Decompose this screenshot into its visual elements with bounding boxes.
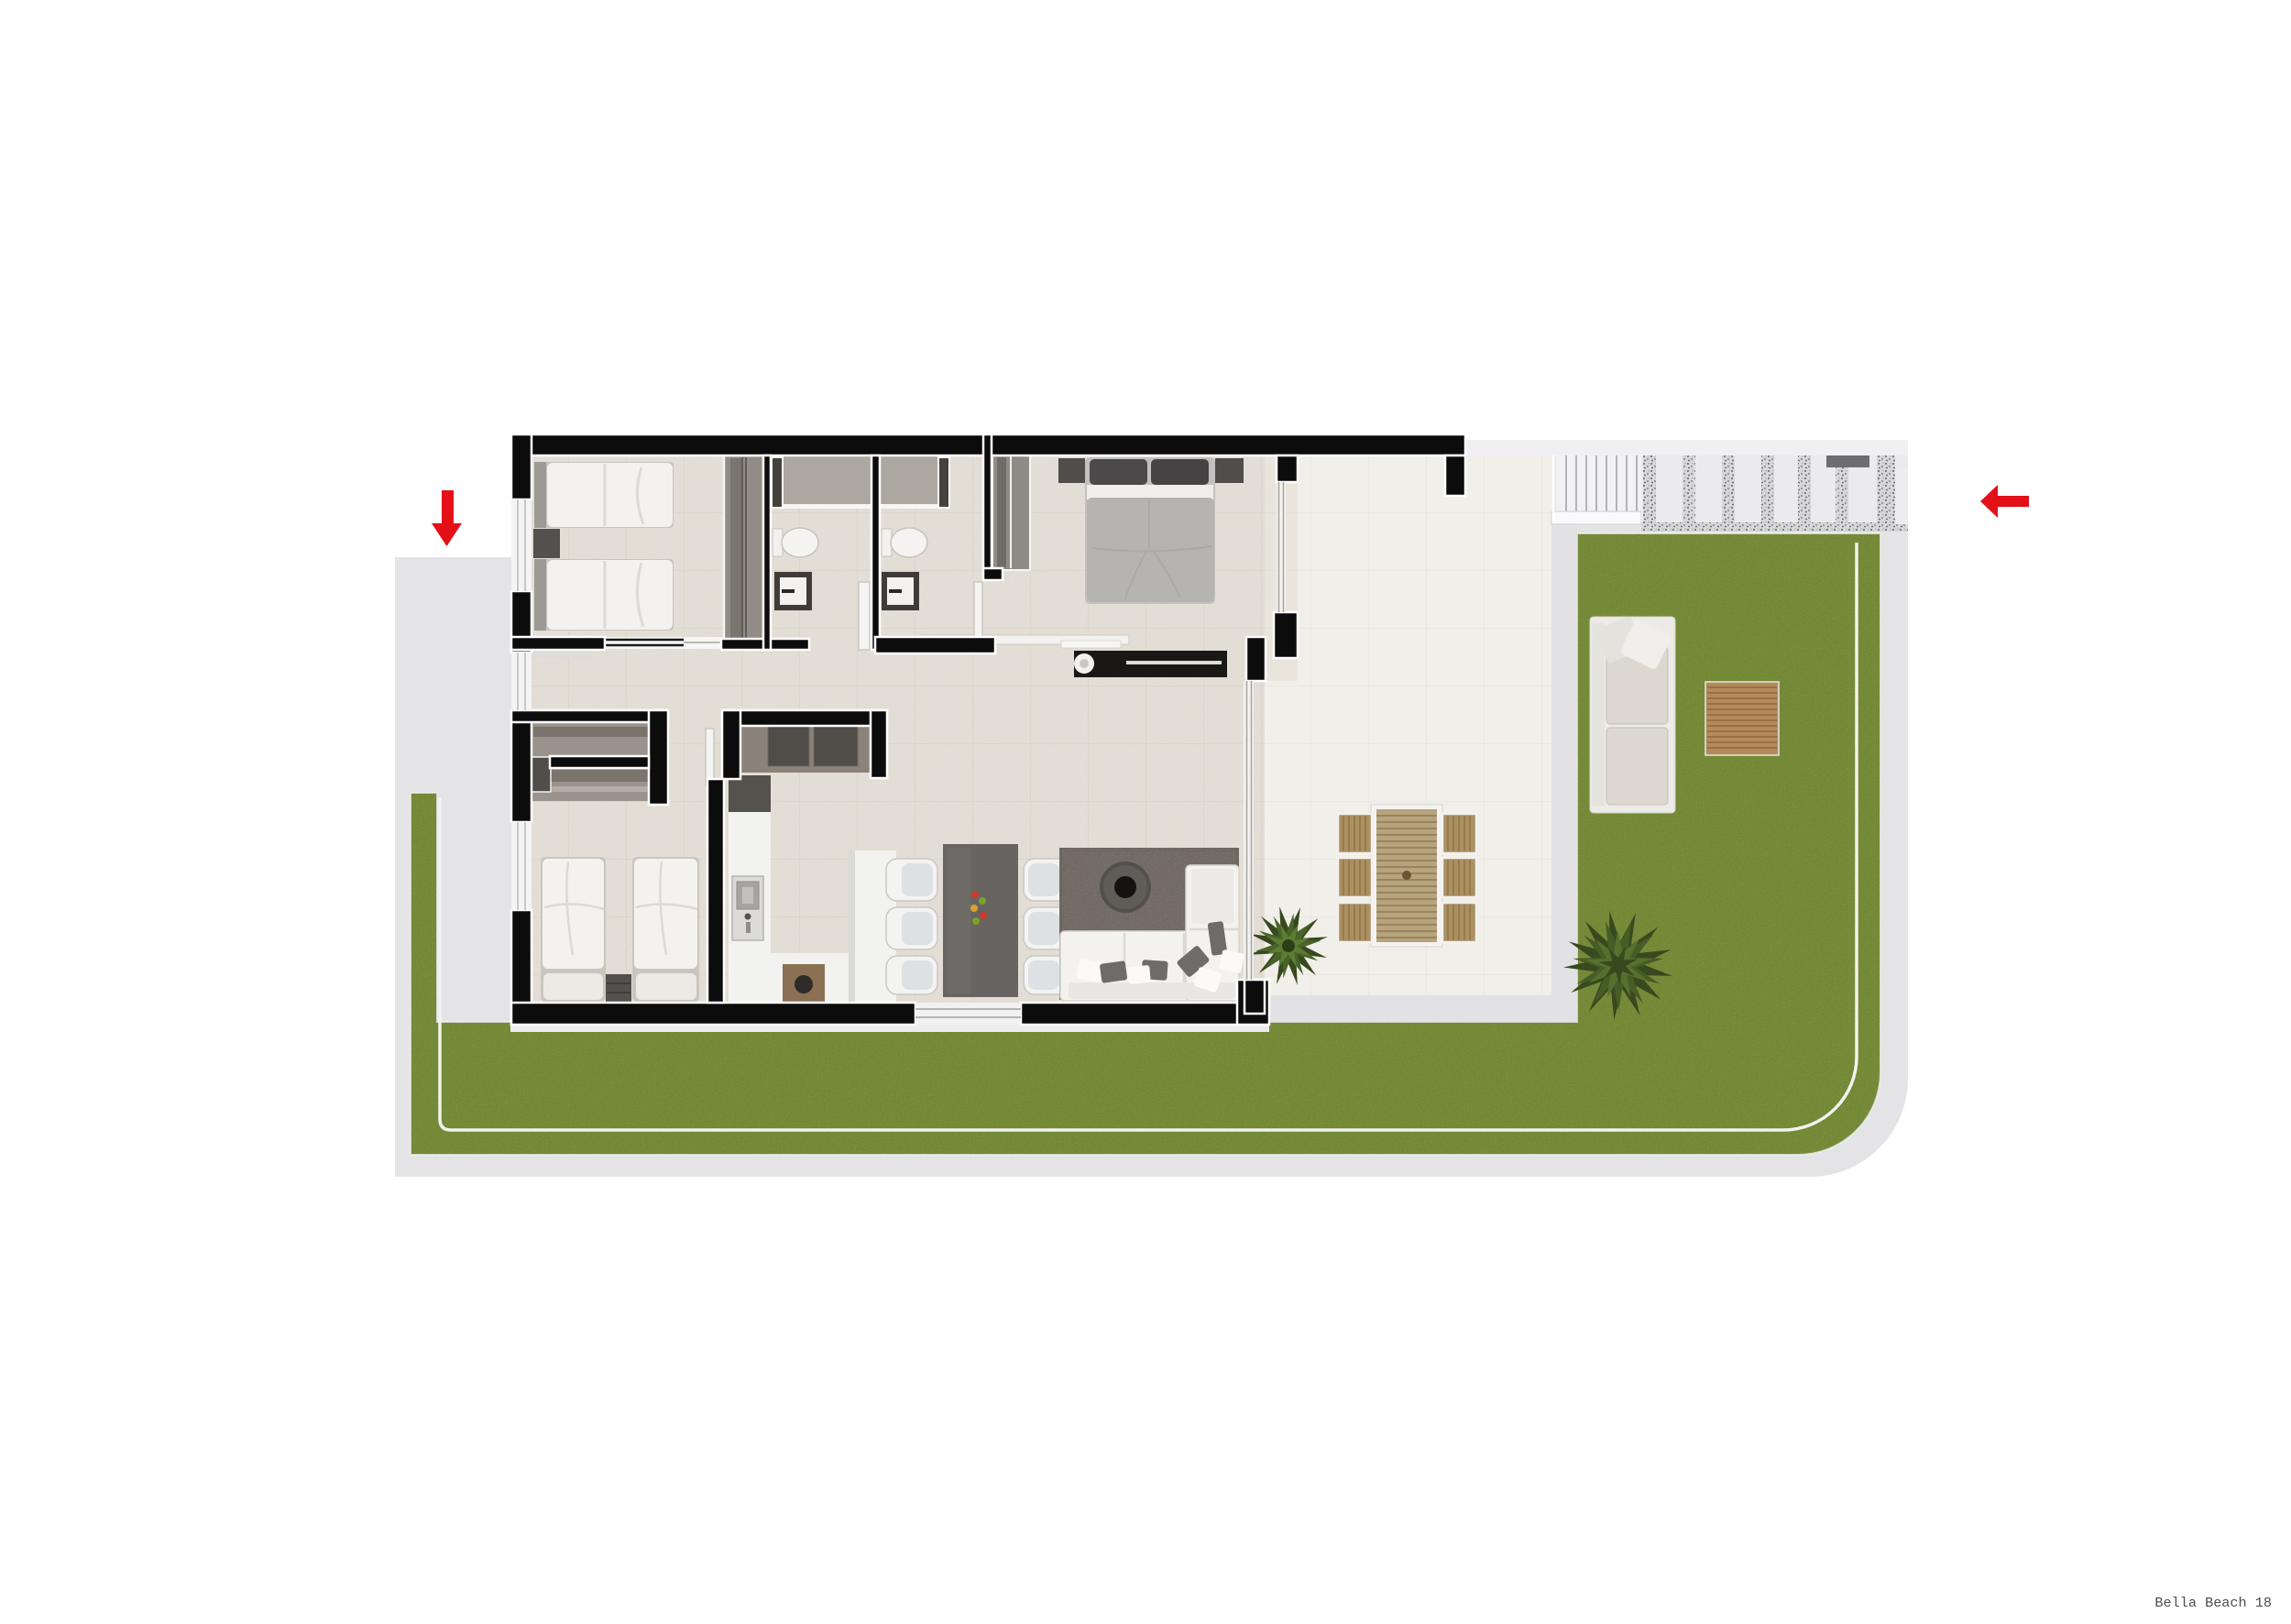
svg-text:Bella Beach 18: Bella Beach 18 <box>2154 1595 2272 1611</box>
